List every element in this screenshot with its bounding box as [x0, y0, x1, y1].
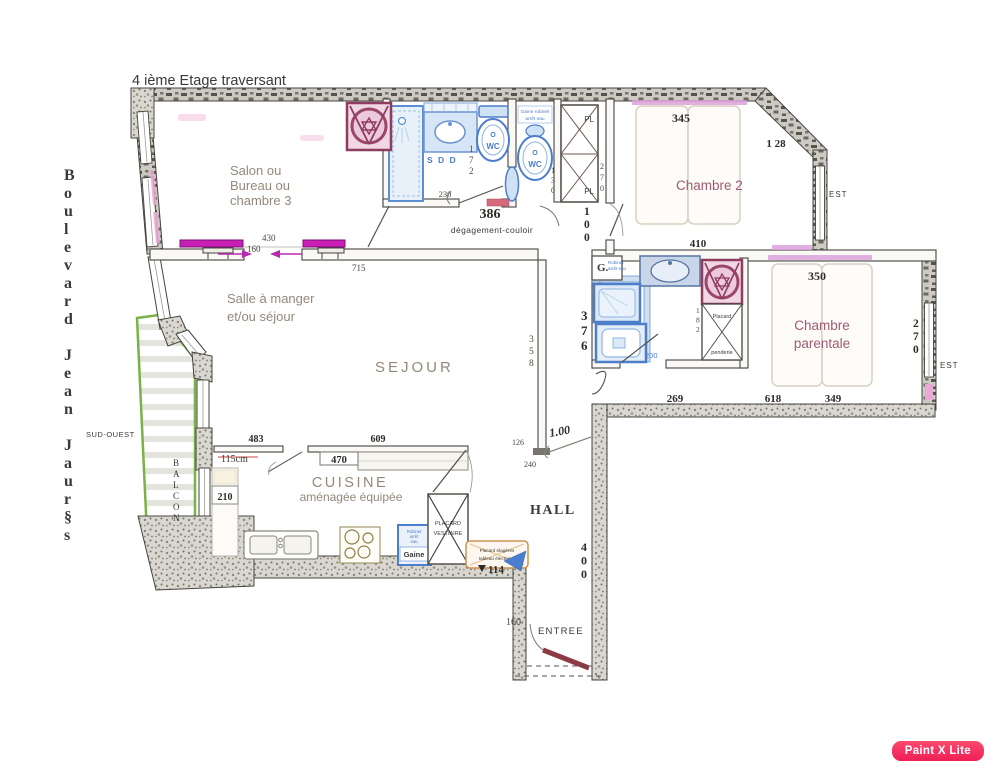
wall-sejour-foot [533, 448, 550, 455]
pink-scribble-1 [178, 114, 206, 121]
label-degagement-couloir: dégagement-couloir [451, 225, 533, 235]
bath2-door-swing [592, 371, 606, 394]
pl-bottom-label: PL [584, 187, 594, 196]
dim-400: 400 [581, 540, 587, 581]
dim-609: 609 [371, 434, 386, 445]
dim-430: 430 [262, 233, 276, 243]
ceiling-light-salon-icon [347, 103, 391, 150]
bathroom2: G. Robinet arrêt eau [592, 256, 700, 394]
dim-172: 172 [469, 144, 474, 176]
wc2-note-line1: Gaine robinet [521, 109, 550, 115]
street-name: Boulevard Jean Jaur§s [64, 167, 75, 544]
dim-1-00: 1.00 [548, 423, 571, 440]
cuisine-door-leaf [268, 452, 302, 472]
pl-closets: PL PL [561, 105, 598, 202]
wc1-tank [479, 106, 508, 117]
g-box-note2: arrêt eau [608, 266, 627, 271]
wall-east-hall [592, 404, 607, 680]
dim-160: 160 [247, 244, 261, 254]
pink-mark-chambre2-bottom [772, 245, 812, 250]
hall-opening-line [549, 437, 591, 452]
dim-240: 240 [524, 460, 536, 469]
dim-376: 376 [581, 308, 588, 353]
hand-basin-icon [506, 167, 519, 201]
wc2-o-label: O [532, 150, 538, 157]
wall-north [133, 88, 766, 101]
arrow-left-icon [270, 250, 280, 258]
wall-sejour-hall [538, 260, 546, 450]
sliding-door-right [303, 240, 345, 247]
shower-head-icon [399, 118, 406, 125]
wall-wc2-east [554, 99, 561, 202]
wall-chambre2-west-upper [606, 99, 614, 203]
placard-vestiaire-line2: VESTIAIRE [434, 531, 463, 537]
wall-chambre2-west-lower [606, 240, 614, 254]
room-salon-line3: chambre 3 [230, 193, 291, 208]
room-chambre2: Chambre 2 [676, 178, 743, 193]
wc2-note-line2: arrêt eau [525, 116, 545, 122]
dim-410: 410 [690, 238, 707, 250]
dim-618: 618 [765, 393, 782, 405]
pink-scribble-2 [300, 135, 324, 141]
door-track-right [318, 248, 344, 253]
room-balcon: BALCON [173, 458, 180, 523]
dim-182: 182 [696, 306, 700, 334]
door-track-left [203, 248, 233, 253]
dim-715: 715 [352, 263, 366, 273]
wall-cuisine-north-right [308, 446, 468, 452]
floor-plan-drawing: O WC Gaine robinet arrêt eau O WC PL PL … [0, 0, 998, 768]
wall-south-parentale [600, 404, 935, 417]
dim-269: 269 [667, 393, 684, 405]
dim-358: 358 [529, 335, 534, 369]
dim-349: 349 [825, 393, 842, 405]
dim-350: 350 [808, 269, 826, 283]
ceiling-light-bath2-icon [702, 260, 742, 304]
room-parentale-line1: Chambre [794, 318, 850, 333]
gaine-note3: eau [411, 539, 419, 544]
room-sejour: SEJOUR [375, 359, 454, 376]
wc2-label: WC [528, 160, 542, 169]
dim-130: 130 [551, 166, 555, 195]
dim-470: 470 [331, 455, 347, 466]
wc2-door-arc [540, 206, 559, 226]
balcony-pier-2 [192, 352, 212, 382]
label-sdd: S D D [427, 155, 457, 165]
pl-top-label: PL [584, 115, 594, 124]
wc1-o-label: O [490, 132, 496, 139]
dim-483: 483 [249, 434, 264, 445]
pink-mark-parentale-top [768, 255, 872, 260]
radiator-mark-parentale [925, 384, 933, 400]
entree-door-leaf [543, 650, 589, 668]
balcony-pier-3 [196, 428, 212, 470]
dim-210: 210 [218, 492, 233, 503]
orientation-est-1: EST [829, 190, 848, 199]
wall-wc2-west [508, 99, 516, 167]
placard-etageres-line1: Placard étagères [480, 548, 515, 553]
dim-100: 100 [584, 206, 590, 244]
room-entree: ENTREE [538, 626, 584, 637]
page-title: 4 ième Etage traversant [132, 73, 286, 89]
room-cuisine-line2: aménagée équipée [300, 490, 403, 504]
room-cuisine-line1: CUISINE [312, 475, 388, 491]
watermark-badge: Paint X Lite [892, 741, 984, 761]
dim-200: 200 [645, 351, 658, 360]
room-salon-line1: Salon ou [230, 163, 281, 178]
kitchen: Robinet arrêt eau Gaine PLACARD VESTIAIR… [212, 450, 528, 571]
dim-230: 230 [439, 189, 452, 199]
dim-115cm: 115cm [221, 454, 248, 465]
dim-270-parentale: 270 [913, 318, 919, 356]
placard-penderie-line1: Placard [713, 314, 732, 320]
dim-126: 126 [512, 438, 524, 447]
dim-114: 114 [488, 564, 504, 576]
dim-386: 386 [480, 207, 501, 222]
bathtub-drain [613, 338, 625, 348]
gaine-label: Gaine [404, 550, 425, 559]
g-box-note1: Robinet [608, 260, 624, 265]
room-salle-a-manger-line1: Salle à manger [227, 291, 315, 306]
dim-160-entree: 160 [506, 617, 521, 628]
room-salle-a-manger-line2: et/ou séjour [227, 309, 296, 324]
dim-270-pl: 270 [600, 162, 604, 193]
sliding-door-left [180, 240, 243, 247]
wc1-label: WC [486, 142, 500, 151]
salon-door-leaf [368, 206, 389, 247]
g-box-label: G. [597, 262, 609, 274]
room-salon-line2: Bureau ou [230, 178, 290, 193]
dim-128: 1 28 [766, 138, 786, 150]
pink-mark-chambre2-top [632, 100, 747, 105]
wall-cuisine-north-left [214, 446, 283, 452]
dim-345: 345 [672, 111, 690, 125]
placard-vestiaire-line1: PLACARD [435, 521, 461, 527]
placard-penderie-line2: penderie [711, 350, 732, 356]
pink-sill-couloir [487, 199, 509, 206]
room-hall: HALL [530, 503, 576, 518]
placard-penderie: Placard penderie [702, 304, 742, 360]
orientation-est-2: EST [940, 361, 959, 370]
floor-plan-scan: O WC Gaine robinet arrêt eau O WC PL PL … [0, 0, 998, 768]
orientation-sud-ouest: SUD-OUEST [86, 430, 135, 439]
room-parentale-line2: parentale [794, 336, 850, 351]
wall-bath2-south-right [666, 360, 746, 368]
